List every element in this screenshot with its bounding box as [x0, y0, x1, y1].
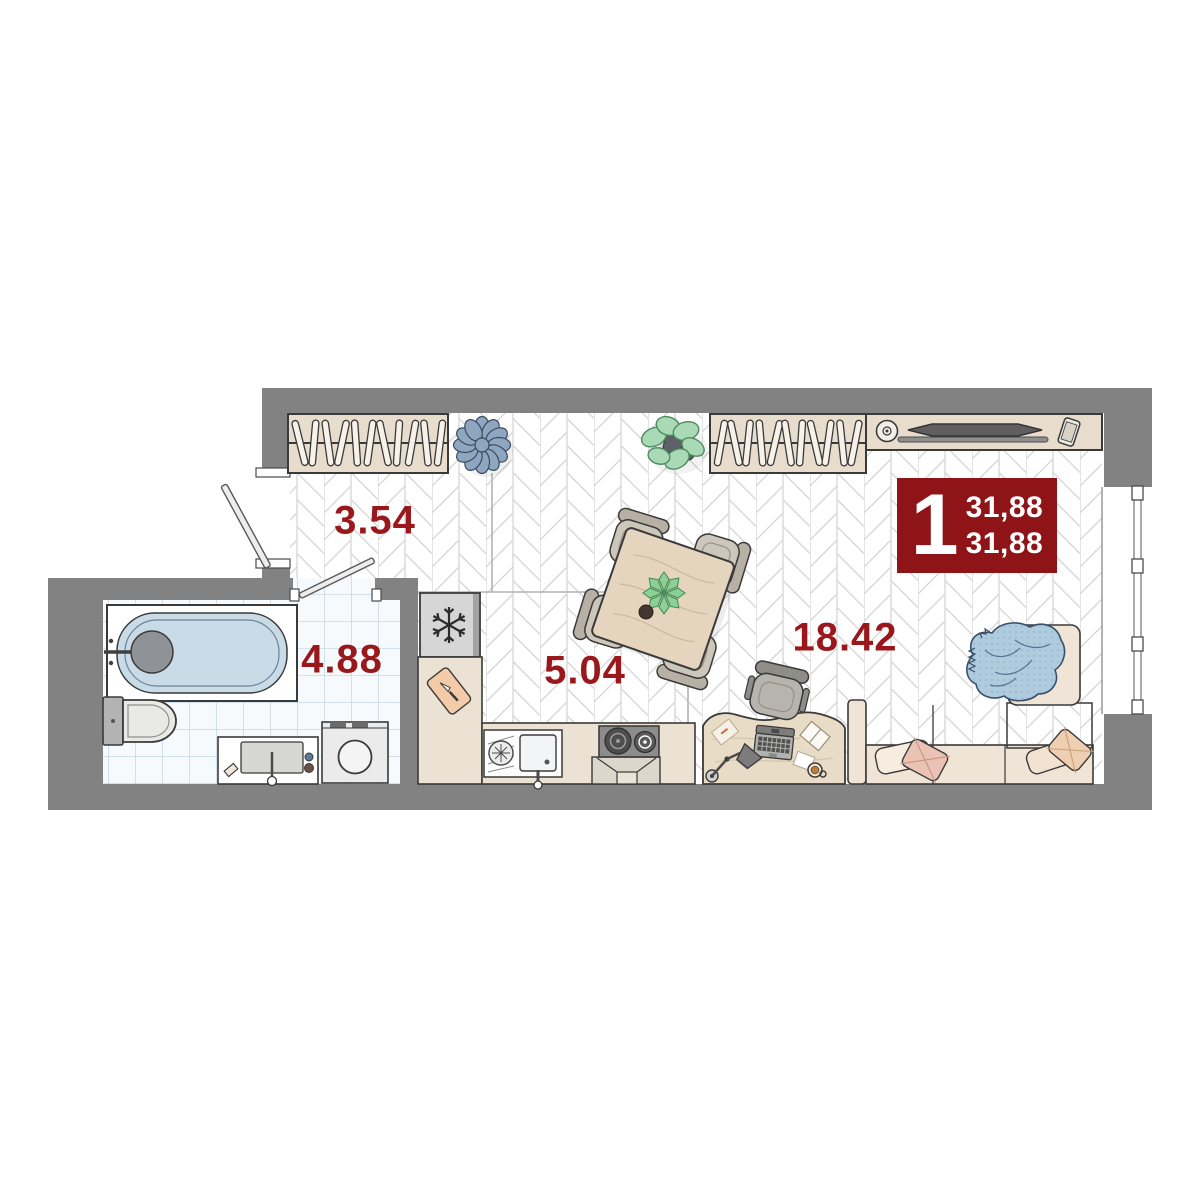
laptop: [754, 725, 795, 760]
washing-machine: [322, 722, 388, 783]
hall-left-wall-lower: [262, 568, 290, 578]
rooms-count: 1: [911, 489, 957, 562]
table-bowl: [639, 605, 653, 619]
speaker: [877, 421, 898, 442]
kitchen-wall: [400, 600, 418, 784]
bathroom-top-wall: [48, 578, 293, 600]
fridge: [420, 593, 480, 657]
vanity-sink: [218, 737, 318, 786]
area-label-bathroom: 4.88: [301, 638, 383, 683]
wardrobe: [288, 414, 448, 473]
desk: [703, 712, 845, 784]
stove: [592, 726, 660, 784]
area-label-hallway: 3.54: [334, 499, 416, 544]
unit-info-badge: 1 31,88 31,88: [897, 478, 1057, 573]
total-area: 31,88: [966, 490, 1044, 525]
right-wall-upper: [1104, 413, 1152, 487]
tv: [898, 424, 1048, 442]
bathroom-left-wall: [48, 600, 103, 784]
window: [1132, 486, 1143, 714]
floor-plan: 3.54 4.88 5.04 18.42 1 31,88 31,88: [0, 0, 1200, 1200]
top-wall: [262, 388, 1152, 413]
blanket: [967, 623, 1065, 701]
tv-console: [866, 414, 1102, 450]
area-label-living-room: 18.42: [792, 616, 897, 661]
sofa-armrest: [848, 700, 866, 784]
living-area: 31,88: [966, 526, 1044, 561]
area-label-kitchen: 5.04: [544, 649, 626, 694]
floor-plan-drawing: [0, 0, 1200, 1200]
toilet: [103, 697, 176, 745]
wardrobe-2: [710, 414, 866, 473]
bathtub: [104, 605, 297, 701]
right-wall-lower: [1104, 714, 1152, 784]
bottom-wall: [48, 784, 1152, 810]
hall-left-wall-upper: [262, 413, 290, 469]
entrance-door: [221, 484, 271, 569]
